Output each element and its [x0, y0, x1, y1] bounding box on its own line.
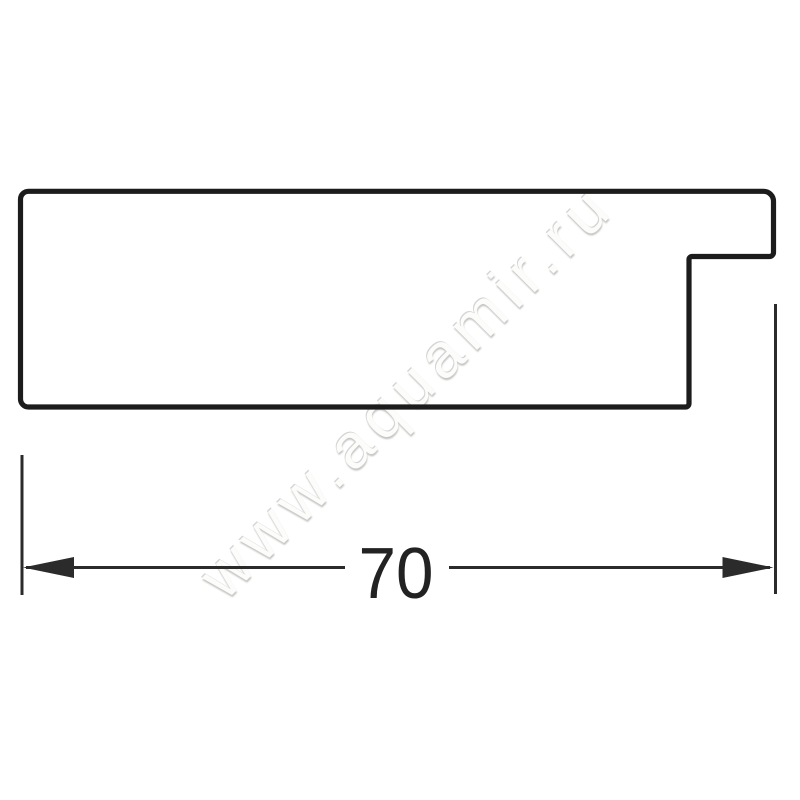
- svg-text:70: 70: [358, 533, 433, 614]
